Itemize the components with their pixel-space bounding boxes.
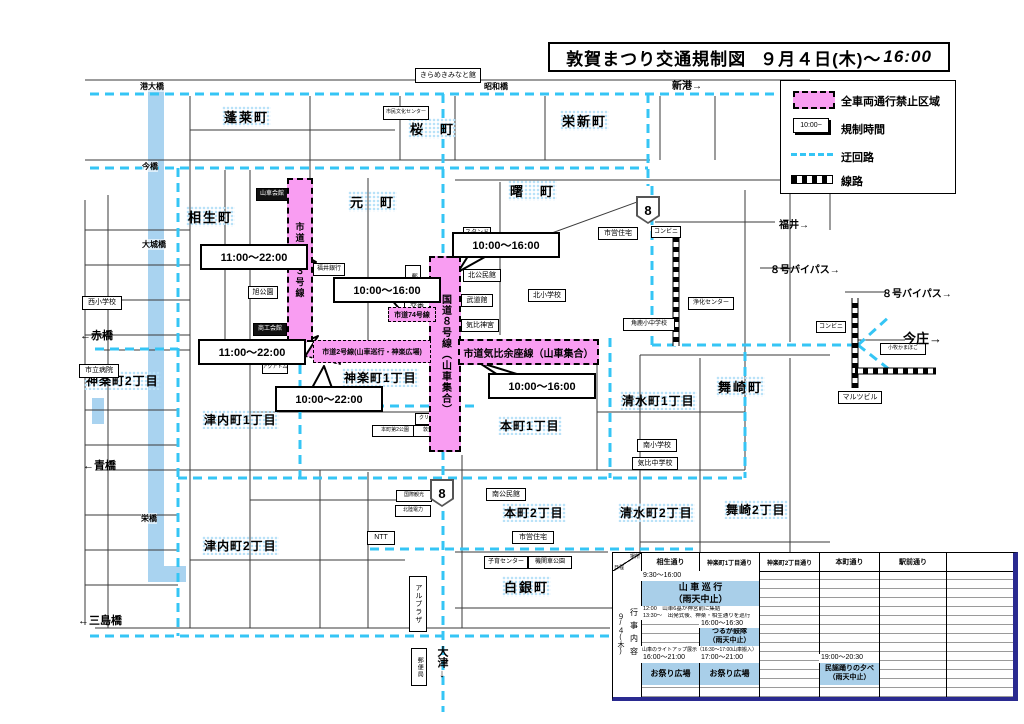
fac-tsunuga-school: 角鹿小中学校: [623, 318, 675, 331]
fac-convenience-north: コンビニ: [651, 226, 681, 238]
town-honcho1: 本町1丁目: [498, 416, 562, 435]
bridge-showabashi: 昭和橋: [484, 81, 508, 92]
legend: 全車両通行禁止区域 10:00~ 規制時間 迂回路 線路: [780, 80, 956, 194]
schedule-corner-cell: 場所 日程: [613, 553, 641, 571]
town-honcho2: 本町2丁目: [502, 503, 566, 522]
schedule-cell-yama-junko: 山 車 巡 行（雨天中止）: [642, 581, 759, 606]
legend-railway-swatch: [791, 175, 833, 184]
dir-imajo: 今庄→: [903, 328, 942, 347]
bridge-minatoohashi: 港大橋: [140, 81, 164, 92]
schedule-cell-omatsuri-hiroba-1: お祭り広場: [642, 663, 699, 685]
town-shiroganecho: 白銀町: [502, 576, 551, 597]
traffic-regulation-map: 市道１８３号線 国道８号線（山車集合） 市道74号線 市道2号線(山車巡行・神楽…: [0, 0, 1024, 724]
town-shimizucho2: 清水町2丁目: [618, 503, 695, 522]
schedule-cell-omatsuri-hiroba-2: お祭り広場: [700, 663, 759, 685]
town-horaicho: 蓬莱町: [222, 106, 271, 127]
town-maizaki2: 舞崎2丁目: [724, 500, 788, 519]
schedule-col-aioi: 相生通り: [641, 553, 699, 571]
fac-kokusai-kanko: 国際観光: [396, 490, 432, 502]
dir-bypass8-b: ８号バイパス→: [882, 285, 952, 300]
callout-time-1: 10:00～16:00: [333, 277, 441, 303]
town-kaguracho1: 神楽町1丁目: [342, 368, 419, 387]
schedule-col-kagura1: 神楽町1丁目通り: [699, 553, 759, 571]
town-eishincho: 栄新町: [560, 110, 609, 131]
legend-detour-swatch: [791, 153, 833, 156]
fac-convenience-east: コンビニ: [816, 321, 846, 333]
fac-alplaza: アルプラザ: [409, 576, 427, 632]
fac-hokuriku-denryoku: 北陸電力: [395, 505, 431, 517]
schedule-cell-minyo-odori: 民謡踊りの夕べ（雨天中止）: [820, 663, 879, 685]
fac-honcho-park2: 本町第2公園: [372, 425, 418, 437]
fac-kirameki-minato-kan: きらめきみなと館: [415, 68, 481, 83]
callout-time-3: 11:00～22:00: [198, 339, 306, 365]
title-date: ９月４日(木)～: [760, 45, 881, 70]
schedule-side-label: 行事内容: [627, 571, 641, 697]
schedule-cell-time4: 17:00～21:00: [699, 654, 759, 663]
schedule-cell-time1: 9:30～16:00: [641, 571, 759, 581]
zone-shido2: 市道2号線(山車巡行・神楽広場): [313, 340, 431, 363]
fac-city-hospital: 市立病院: [79, 364, 119, 378]
fac-kehi-junior-high: 気比中学校: [632, 457, 678, 470]
town-tsunaicho1: 津内町1丁目: [202, 410, 279, 429]
town-motomachi: 元 町: [348, 191, 397, 212]
town-tsunaicho2: 津内町2丁目: [202, 536, 279, 555]
legend-prohibited-swatch: [793, 91, 835, 109]
callout-time-4: 10:00～22:00: [275, 386, 383, 412]
town-aioicho: 相生町: [186, 206, 235, 227]
callout-time-5: 10:00～16:00: [488, 373, 596, 399]
bridge-daijobashi: 大城橋: [142, 239, 166, 250]
fac-asahi-park: 旭公園: [248, 286, 278, 299]
fac-ntt: NTT: [367, 531, 395, 545]
legend-detour-label: 迂回路: [841, 149, 874, 165]
fac-nishi-elementary: 西小学校: [82, 296, 122, 310]
town-shimizucho1: 清水町1丁目: [620, 391, 697, 410]
fac-kosodate-center: 子育センター: [484, 556, 528, 569]
dir-akabashi: ←赤橋: [80, 327, 113, 343]
town-maizakicho: 舞崎町: [716, 376, 765, 397]
schedule-cell-time5: 19:00～20:30: [819, 654, 879, 663]
bridge-sakaebashi: 栄橋: [141, 513, 157, 524]
bridge-imabashi: 今橋: [142, 161, 158, 172]
legend-time-label: 規制時間: [841, 121, 885, 137]
town-akebonocho: 曙 町: [508, 180, 557, 201]
fac-shiei-jutaku-north: 市営住宅: [598, 227, 638, 240]
schedule-table: 場所 日程 相生通り 神楽町1丁目通り 神楽町2丁目通り 本町通り 駅前通り ９…: [612, 552, 1018, 701]
dir-fukui: 福井→: [779, 216, 809, 231]
fac-marutsu-building: マルツビル: [838, 391, 882, 404]
fac-shoko-kaikan: 商工会館: [253, 323, 287, 336]
zone-shido74: 市道74号線: [388, 307, 436, 322]
dir-bypass8-a: ８号バイパス→: [770, 261, 840, 276]
fac-post-office-south: 郵便局: [411, 648, 427, 686]
title-time: 16:00: [883, 47, 931, 67]
schedule-note-lightup: 山車のライトアップ展示（16:30～17:00山車搬入）: [641, 646, 759, 654]
fac-kehi-jingu: 気比神宮: [461, 319, 499, 332]
fac-bunka-center: 市民文化センター: [383, 106, 429, 120]
dir-aobashi: ←青橋: [83, 457, 116, 473]
dir-mishimabashi: ←三島橋: [78, 612, 122, 628]
schedule-note-1200: 12:00 山車6基が神宮前に集結: [641, 606, 759, 613]
schedule-date-label: ９/４(木): [613, 571, 627, 697]
legend-prohibited-label: 全車両通行禁止区域: [841, 93, 940, 109]
dir-shinko: 新港→: [672, 77, 702, 92]
town-sakuracho: 桜 町: [408, 118, 457, 139]
fac-minami-kominkan: 南公民館: [486, 488, 526, 501]
title-main: 敦賀まつり交通規制図: [566, 45, 746, 70]
fac-shiei-jutaku-south: 市営住宅: [512, 531, 554, 544]
callout-time-0: 11:00～22:00: [200, 244, 308, 270]
fac-fukui-bank: 福井銀行: [313, 263, 345, 276]
schedule-note-1330: 13:30～ 出発式後、神楽・相生通りを巡行: [641, 613, 759, 620]
fac-budokan: 武道館: [461, 294, 493, 307]
fac-minami-elementary: 南小学校: [637, 439, 677, 452]
fac-kita-elementary: 北小学校: [528, 289, 566, 302]
schedule-cell-tsuruga-kotai: つるが鼓隊（雨天中止）: [700, 628, 759, 646]
fac-kikansha-park: 機関車公園: [528, 556, 572, 569]
schedule-col-ekimae: 駅前通り: [879, 553, 946, 571]
zone-kehiyoza: 市道気比余座線（山車集合）: [458, 339, 599, 365]
schedule-col-kagura2: 神楽町2丁目通り: [759, 553, 819, 571]
schedule-cell-time3: 16:00～21:00: [641, 654, 699, 663]
callout-time-2: 10:00～16:00: [452, 232, 560, 258]
schedule-cell-time2: 16:00～16:30: [699, 620, 759, 628]
fac-joka-center: 浄化センター: [688, 297, 734, 310]
legend-time-sample-box: 10:00~: [793, 118, 829, 133]
fac-kita-kominkan: 北公民館: [463, 269, 501, 282]
map-title: 敦賀まつり交通規制図 ９月４日(木)～ 16:00: [548, 42, 950, 72]
dir-otsu: 大津↓: [434, 646, 450, 680]
railway-lines: [676, 232, 936, 388]
legend-railway-label: 線路: [841, 173, 863, 189]
fac-yama-kaikan: 山車会館: [256, 188, 288, 201]
schedule-col-honcho: 本町通り: [819, 553, 879, 571]
